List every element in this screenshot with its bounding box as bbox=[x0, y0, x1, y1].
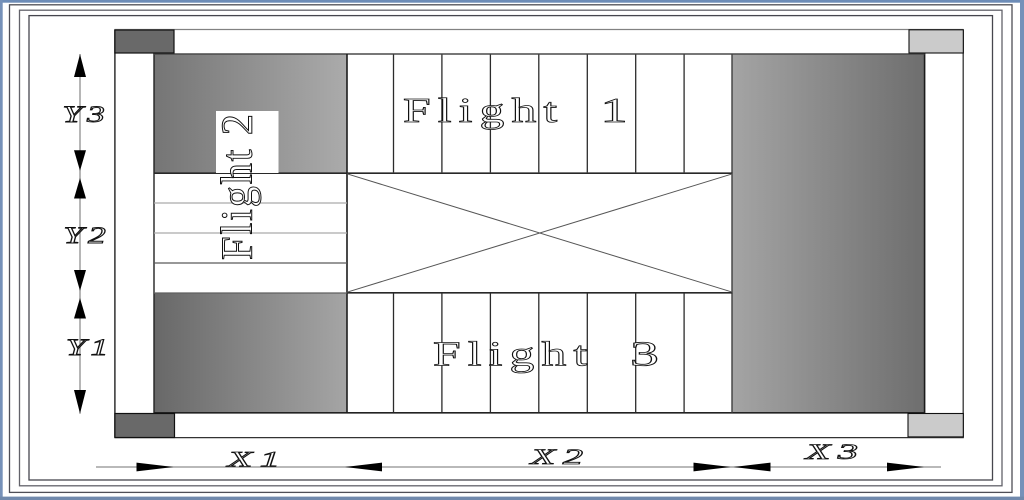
svg-text:X3: X3 bbox=[803, 440, 865, 464]
svg-text:Flight: Flight bbox=[433, 335, 594, 373]
svg-text:X2: X2 bbox=[528, 445, 590, 469]
svg-text:X1: X1 bbox=[225, 448, 287, 472]
svg-text:Flight 2: Flight 2 bbox=[214, 112, 262, 260]
svg-text:Y3: Y3 bbox=[63, 102, 110, 127]
svg-text:3: 3 bbox=[630, 335, 659, 374]
svg-text:Y2: Y2 bbox=[64, 223, 111, 248]
svg-text:Flight: Flight bbox=[403, 92, 564, 130]
svg-text:1: 1 bbox=[600, 91, 627, 130]
svg-text:Y1: Y1 bbox=[66, 335, 113, 360]
